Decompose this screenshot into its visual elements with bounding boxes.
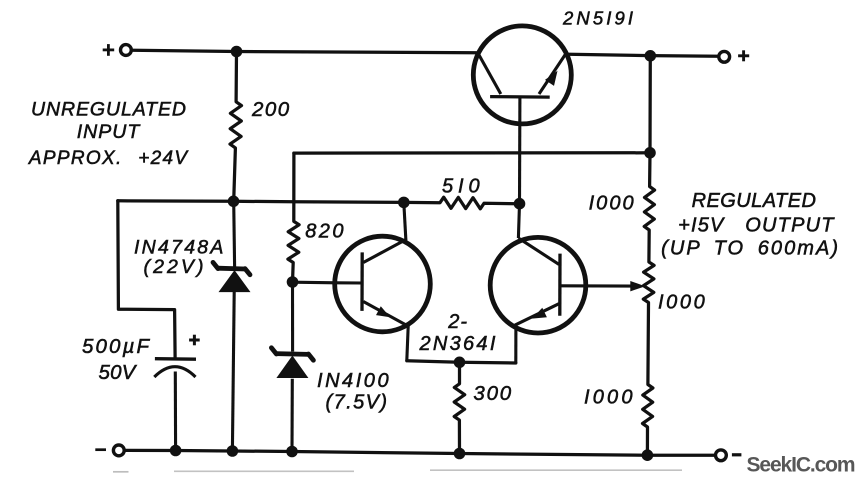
svg-text:5I0: 5I0 [442,176,484,198]
svg-text:UNREGULATED: UNREGULATED [31,99,187,121]
svg-text:INPUT: INPUT [77,121,142,143]
svg-text:200: 200 [251,98,291,121]
svg-text:I000: I000 [589,193,636,215]
svg-text:2-: 2- [447,311,468,333]
svg-text:IN4748A: IN4748A [134,236,226,258]
svg-text:APPROX. +24V: APPROX. +24V [28,148,189,169]
svg-text:+I5V OUTPUT: +I5V OUTPUT [678,214,835,236]
svg-text:300: 300 [473,382,513,405]
svg-text:(7.5V): (7.5V) [326,392,389,414]
svg-text:REGULATED: REGULATED [692,190,817,212]
svg-text:(UP TO 600mA): (UP TO 600mA) [661,237,840,259]
svg-text:2N5I9I: 2N5I9I [562,8,636,29]
svg-text:IN4I00: IN4I00 [317,370,391,392]
svg-text:500µF: 500µF [82,335,151,358]
svg-text:I000: I000 [658,292,707,314]
svg-text:SeekIC.com: SeekIC.com [747,453,855,476]
svg-text:2N364I: 2N364I [419,333,498,355]
svg-text:50V: 50V [99,361,138,384]
svg-text:820: 820 [305,221,346,243]
svg-text:I000: I000 [584,387,636,409]
svg-text:(22V): (22V) [144,256,207,278]
